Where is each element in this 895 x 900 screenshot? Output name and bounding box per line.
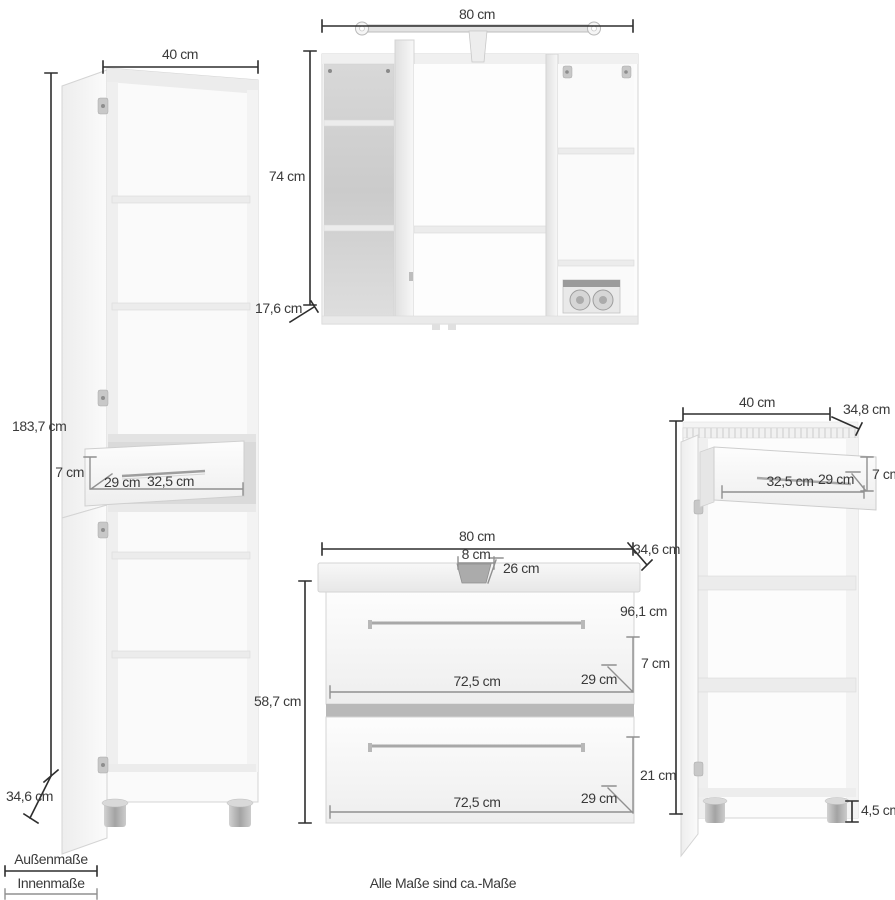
mirror-cabinet-bottom-band xyxy=(322,316,638,324)
handle-end xyxy=(581,620,585,629)
handle-end xyxy=(368,620,372,629)
mirror-center-compartment xyxy=(414,64,546,318)
dim-mirror-depth: 17,6 cm xyxy=(255,300,302,316)
tall-cabinet-shelf xyxy=(112,651,250,658)
legend-outer-label: Außenmaße xyxy=(14,851,88,867)
mirror-door-bottom-tab xyxy=(448,324,456,330)
socket-box xyxy=(563,280,620,313)
handle-end xyxy=(368,743,372,752)
door-mount-dot xyxy=(624,70,628,74)
dim-tall-drawer-width: 32,5 cm xyxy=(147,473,194,489)
dim-side-depth: 34,8 cm xyxy=(843,401,890,417)
dim-vanity-drawer2-height: 21 cm xyxy=(640,767,676,783)
dim-vanity-drawer2-depth: 29 cm xyxy=(581,790,617,806)
mirror-right-shelf xyxy=(558,148,634,154)
dim-side-width: 40 cm xyxy=(739,394,775,410)
legend-inner-label: Innenmaße xyxy=(17,875,85,891)
dim-side-height: 96,1 cm xyxy=(620,603,667,619)
tall-cabinet-feet xyxy=(102,799,253,827)
tall-cabinet xyxy=(62,68,258,854)
dim-line-mirror-height xyxy=(304,51,316,305)
dim-vanity-drawer1-height: 7 cm xyxy=(641,655,670,671)
tall-cabinet-right-wall xyxy=(247,90,258,772)
mirror-cabinet xyxy=(322,22,638,330)
tall-cabinet-lower-door xyxy=(62,505,107,854)
door-mount-dot xyxy=(565,70,569,74)
mirror-door-bottom-tab xyxy=(432,324,440,330)
dim-vanity-drawer1-depth: 29 cm xyxy=(581,671,617,687)
dim-side-drawer-height: 7 cm xyxy=(872,466,895,482)
tall-cabinet-bottom-board xyxy=(108,764,256,772)
door-damper-dot xyxy=(328,69,332,73)
dim-vanity-width: 80 cm xyxy=(459,528,495,544)
hinge xyxy=(694,762,703,776)
dim-vanity-depth: 34,6 cm xyxy=(633,541,680,557)
door-damper-dot xyxy=(386,69,390,73)
side-cabinet-shelf xyxy=(698,678,856,692)
side-cabinet-floor xyxy=(698,788,856,797)
tall-cabinet-shelf xyxy=(112,303,250,310)
dim-vanity-drawer1-width: 72,5 cm xyxy=(454,673,501,689)
siphon-cutout xyxy=(457,564,491,583)
dim-mirror-width: 80 cm xyxy=(459,6,495,22)
mirror-open-door-edge xyxy=(546,54,558,320)
mirror-left-shelf xyxy=(324,225,394,231)
mirror-left-shelf xyxy=(324,120,394,126)
side-cabinet-open-door xyxy=(681,435,698,856)
side-cabinet-top-surface xyxy=(683,422,858,428)
dim-tall-drawer-depth: 29 cm xyxy=(104,474,140,490)
legend: Außenmaße Innenmaße xyxy=(5,851,97,899)
dim-tall-depth: 34,6 cm xyxy=(6,788,53,804)
dim-side-drawer-depth: 29 cm xyxy=(818,471,854,487)
diagram-svg: Außenmaße Innenmaße 40 cm 183,7 cm 7 cm … xyxy=(0,0,895,900)
tall-cabinet-left-wall xyxy=(107,82,118,772)
dim-tall-drawer-height: 7 cm xyxy=(55,464,84,480)
mirror-right-shelf xyxy=(558,260,634,266)
dim-vanity-drawer2-width: 72,5 cm xyxy=(454,794,501,810)
dim-side-foot-height: 4,5 cm xyxy=(861,802,895,818)
side-cabinet-shelf xyxy=(698,576,856,590)
tall-cabinet-shelf xyxy=(112,196,250,203)
mirror-left-compartment xyxy=(324,64,394,318)
mirror-door-latch xyxy=(409,272,413,281)
vanity-cabinet xyxy=(318,563,640,823)
tall-cabinet-drawer-rail-bottom xyxy=(108,504,256,512)
tall-cabinet-shelf xyxy=(112,552,250,559)
footnote: Alle Maße sind ca.-Maße xyxy=(370,875,517,891)
dim-tall-width: 40 cm xyxy=(162,46,198,62)
mirror-center-shelf xyxy=(414,226,546,233)
dim-mirror-height: 74 cm xyxy=(269,168,305,184)
dim-vanity-height: 58,7 cm xyxy=(254,693,301,709)
tall-cabinet-drawer-rail-top xyxy=(108,434,256,442)
dim-vanity-cutout-width: 8 cm xyxy=(462,546,491,562)
dim-vanity-cutout-depth: 26 cm xyxy=(503,560,539,576)
side-drawer-side xyxy=(700,447,714,507)
side-cabinet-ribbed-top xyxy=(683,428,858,438)
dim-side-drawer-width: 32,5 cm xyxy=(767,473,814,489)
vanity-drawer-gap xyxy=(326,704,634,717)
furniture-dimension-diagram: Außenmaße Innenmaße 40 cm 183,7 cm 7 cm … xyxy=(0,0,895,900)
dim-tall-height: 183,7 cm xyxy=(12,418,66,434)
handle-end xyxy=(581,743,585,752)
dim-line-side-height xyxy=(670,421,682,814)
